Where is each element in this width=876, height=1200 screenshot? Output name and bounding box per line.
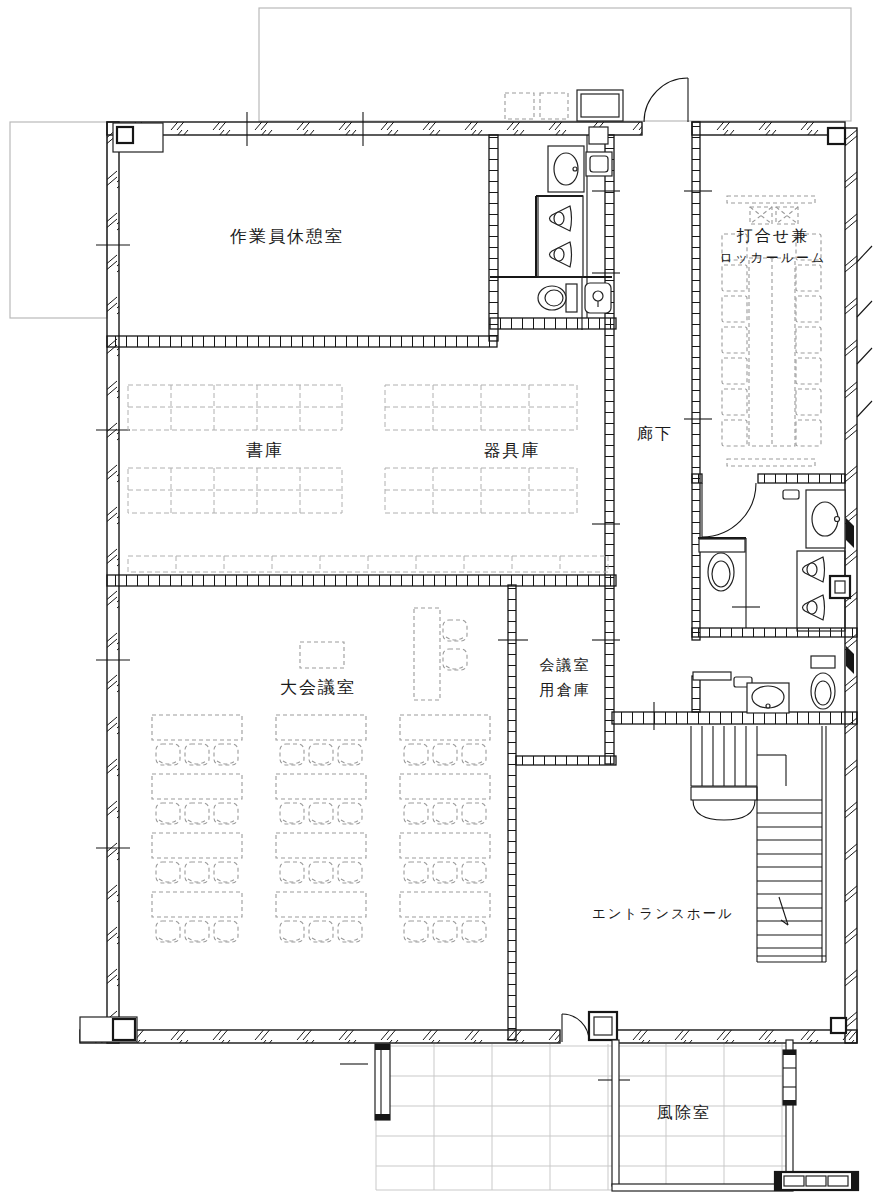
entrance-door-bottom	[562, 1012, 617, 1042]
toilet-icon	[811, 656, 835, 709]
room-label-worker-lounge: 作業員休憩室	[229, 227, 344, 246]
sliding-door-main	[775, 1172, 858, 1190]
room-label-entrance-hall: エントランスホール	[592, 906, 734, 921]
sink-icon	[806, 490, 845, 548]
sink-icon	[548, 146, 584, 192]
room-windbreak: 風除室	[375, 1040, 858, 1191]
room-meeting-locker: 打合せ兼 ロッカールーム	[720, 196, 827, 466]
room-label-corridor: 廊下	[637, 425, 673, 442]
hand-sink-icon	[585, 283, 611, 313]
room-label-meeting-locker-2: ロッカールーム	[720, 250, 827, 265]
floor-plan-svg: 作業員休憩室 書庫 器具庫	[0, 0, 876, 1200]
room-large-conference: 大会議室	[152, 608, 490, 942]
outdoor-equipment-pads	[505, 93, 568, 119]
tile-paving	[376, 1044, 790, 1190]
room-label-conference-storage-2: 用倉庫	[540, 681, 591, 698]
room-label-equipment-storage: 器具庫	[484, 441, 541, 460]
floor-plan-canvas: 作業員休憩室 書庫 器具庫	[0, 0, 876, 1200]
exterior-pillar	[375, 1044, 390, 1120]
door-arc	[702, 483, 756, 537]
room-label-meeting-locker-1: 打合せ兼	[736, 227, 809, 244]
sliding-door-side	[783, 1050, 796, 1105]
accessible-wc	[693, 656, 835, 713]
room-worker-lounge: 作業員休憩室	[229, 227, 344, 246]
room-label-book-storage: 書庫	[246, 441, 284, 460]
sanitary-block-right	[698, 483, 850, 631]
toilet-icon	[698, 538, 746, 628]
room-entrance-hall: エントランスホール	[562, 906, 734, 1042]
entrance-door-top	[644, 78, 688, 122]
room-label-conference-storage-1: 会議室	[540, 656, 591, 673]
toilet-icon	[538, 284, 577, 312]
staircase	[691, 726, 826, 962]
room-label-windbreak: 風除室	[657, 1104, 711, 1121]
sink-icon	[747, 683, 789, 713]
exterior-outline	[10, 8, 851, 318]
room-book-storage: 書庫 器具庫	[128, 385, 608, 572]
conference-tables	[152, 608, 490, 942]
shelving-units	[128, 385, 608, 572]
urinal-icon	[538, 196, 583, 277]
room-label-large-conference: 大会議室	[280, 678, 356, 697]
stair-handrail	[691, 787, 757, 820]
sanitary-block-top	[490, 127, 612, 330]
room-conference-storage: 会議室 用倉庫	[540, 656, 591, 698]
